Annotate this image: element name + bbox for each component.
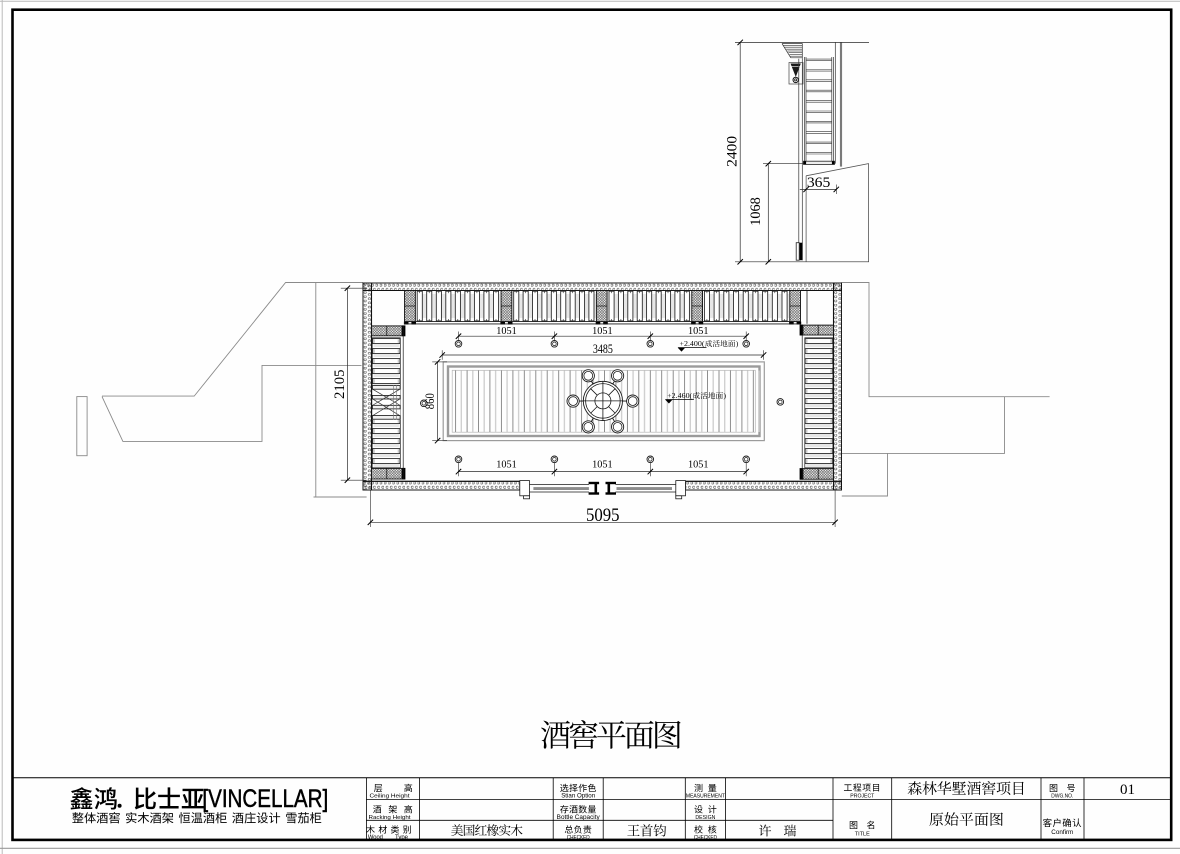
svg-text:PROJECT: PROJECT: [850, 793, 875, 799]
svg-text:DESIGN: DESIGN: [695, 815, 715, 821]
svg-text:2105: 2105: [332, 369, 348, 399]
svg-text:Confirm: Confirm: [1051, 829, 1073, 836]
svg-text:365: 365: [807, 175, 831, 191]
svg-text:3485: 3485: [593, 342, 613, 356]
svg-text:CHECKED: CHECKED: [694, 835, 717, 841]
svg-text:1051: 1051: [496, 458, 517, 470]
svg-text:TITLE: TITLE: [855, 831, 870, 837]
svg-text:01: 01: [1120, 782, 1135, 798]
svg-text:1051: 1051: [688, 458, 709, 470]
svg-text:+2.400(: +2.400(: [680, 339, 705, 348]
svg-text:CHECKED: CHECKED: [567, 835, 590, 841]
svg-text:1051: 1051: [688, 325, 709, 337]
svg-text:1051: 1051: [496, 325, 517, 337]
svg-text:2400: 2400: [724, 136, 740, 167]
svg-text:Racking Height: Racking Height: [369, 815, 411, 821]
svg-text:1051: 1051: [592, 325, 613, 337]
svg-text:Stian Option: Stian Option: [561, 793, 596, 800]
svg-text:+2.460(: +2.460(: [667, 391, 692, 400]
svg-text:5095: 5095: [586, 506, 620, 526]
svg-text:Ceiling Height: Ceiling Height: [370, 794, 410, 800]
svg-text:Bottle Capacity: Bottle Capacity: [557, 814, 601, 821]
svg-text:860: 860: [423, 393, 437, 409]
svg-text:Wood: Wood: [368, 834, 384, 841]
svg-text:1068: 1068: [748, 197, 764, 226]
svg-text:DWG.NO.: DWG.NO.: [1051, 794, 1073, 800]
svg-text:[VINCELLAR]: [VINCELLAR]: [202, 785, 328, 813]
svg-text:MEASUREMENT: MEASUREMENT: [686, 794, 726, 800]
svg-text:Type: Type: [395, 834, 409, 841]
svg-text:1051: 1051: [592, 458, 613, 470]
